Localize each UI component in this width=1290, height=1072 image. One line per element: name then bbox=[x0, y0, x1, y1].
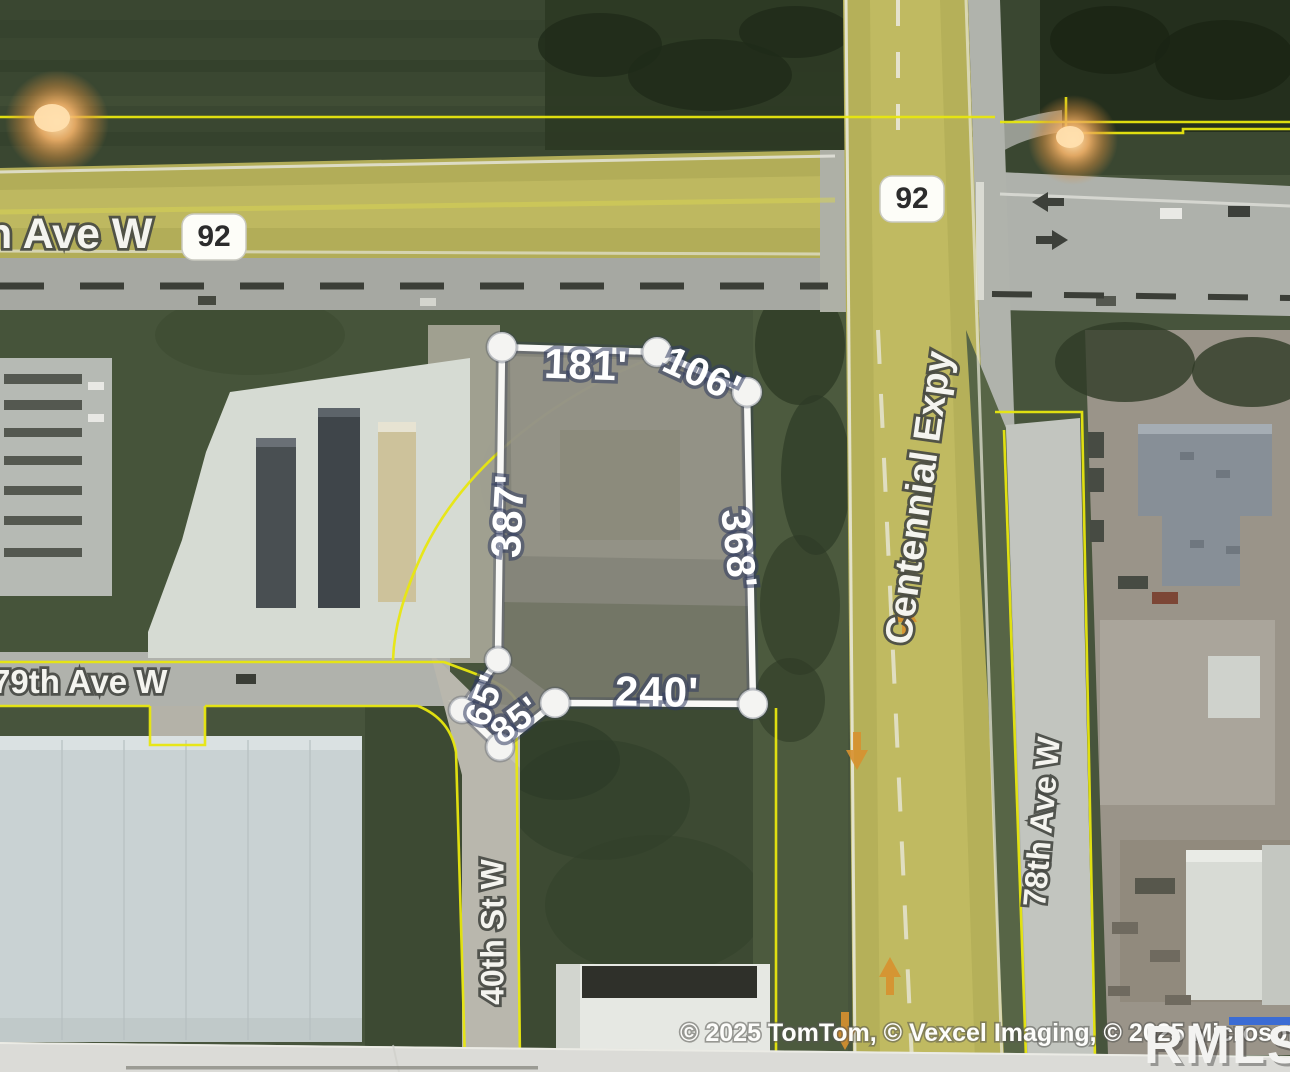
small-white-structure bbox=[1208, 656, 1260, 718]
dim-bottom: 240' bbox=[615, 667, 700, 715]
79th-ave-label: 79th Ave W bbox=[0, 663, 168, 700]
mls-aerial-map-screenshot: 181' 106' 387' 368' 240' 85' 65' n Ave W… bbox=[0, 0, 1290, 1072]
bottom-dark-line bbox=[126, 1066, 538, 1070]
dim-left: 387' bbox=[482, 473, 533, 559]
storage-building-1 bbox=[256, 438, 296, 608]
dim-top: 181' bbox=[543, 340, 629, 390]
route-badge-west: 92 bbox=[182, 214, 246, 260]
storage-building-2 bbox=[318, 408, 360, 608]
40th-st-label: 40th St W bbox=[474, 858, 510, 1005]
ave-w-label: n Ave W bbox=[0, 210, 153, 258]
route-badge-west-label: 92 bbox=[197, 220, 230, 253]
bottom-right-building bbox=[1186, 845, 1290, 1005]
map-canvas: 181' 106' 387' 368' 240' 85' 65' n Ave W… bbox=[0, 0, 1290, 1072]
large-warehouse-roof bbox=[0, 736, 362, 1042]
tan-building bbox=[378, 422, 416, 602]
parking-lot bbox=[0, 358, 112, 596]
subject-parcel: 181' 106' 387' 368' 240' 85' 65' bbox=[449, 332, 768, 761]
route-badge-north: 92 bbox=[880, 176, 944, 222]
route-badge-north-label: 92 bbox=[895, 182, 928, 215]
dim-right: 368' bbox=[712, 507, 764, 591]
rmlsa-watermark: RMLSA bbox=[1144, 1015, 1290, 1072]
